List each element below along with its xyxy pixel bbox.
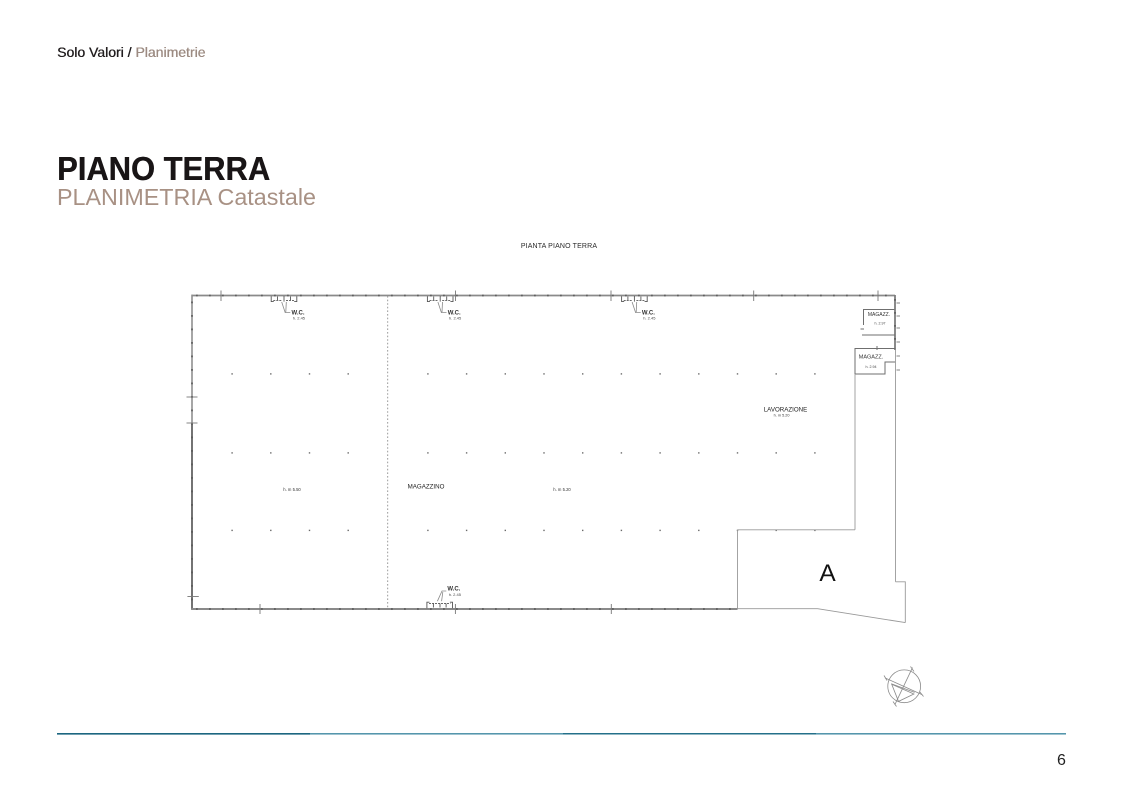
svg-text:MAGAZZ.: MAGAZZ. xyxy=(868,312,890,318)
svg-text:h. m 5.50: h. m 5.50 xyxy=(283,487,301,492)
svg-text:h. 2.97: h. 2.97 xyxy=(875,322,886,326)
svg-text:h. m 5.20: h. m 5.20 xyxy=(774,414,790,418)
svg-text:h. 2.94: h. 2.94 xyxy=(866,365,877,369)
svg-text:PIANTA PIANO TERRA: PIANTA PIANO TERRA xyxy=(521,243,598,250)
svg-text:h. 2.45: h. 2.45 xyxy=(449,316,462,321)
svg-text:h. 2.45: h. 2.45 xyxy=(643,316,656,321)
svg-text:h. m 5.20: h. m 5.20 xyxy=(553,487,571,492)
svg-text:h. 2.45: h. 2.45 xyxy=(449,592,462,597)
svg-text:MAGAZZ.: MAGAZZ. xyxy=(859,355,884,361)
svg-text:LAVORAZIONE: LAVORAZIONE xyxy=(764,407,808,414)
svg-text:h. 2.45: h. 2.45 xyxy=(293,316,306,321)
svg-text:A: A xyxy=(819,560,836,587)
svg-text:MAGAZZINO: MAGAZZINO xyxy=(408,484,445,491)
